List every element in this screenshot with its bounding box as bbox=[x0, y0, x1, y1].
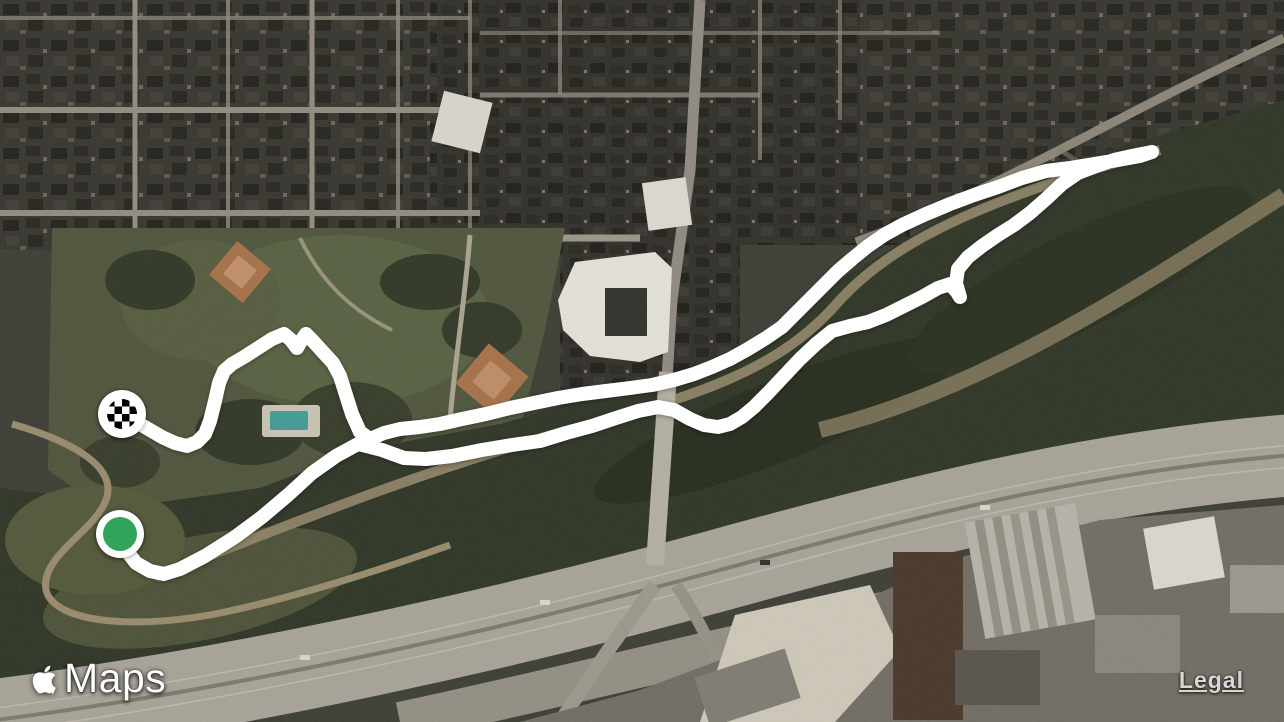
legal-link[interactable]: Legal bbox=[1179, 667, 1244, 694]
workout-route-path bbox=[120, 152, 1152, 574]
route-overlay bbox=[0, 0, 1284, 722]
finish-marker-checkered-flag bbox=[98, 390, 146, 438]
start-marker-green-dot bbox=[96, 510, 144, 558]
workout-route-map[interactable]: Maps Legal bbox=[0, 0, 1284, 722]
